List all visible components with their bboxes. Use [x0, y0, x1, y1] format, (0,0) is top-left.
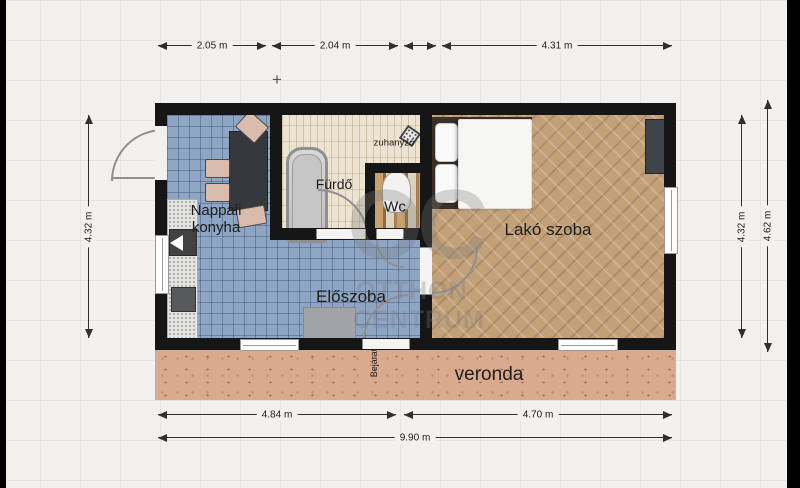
- dim-top-bathroom: 2.04 m: [272, 45, 398, 46]
- dim-top-bathroom-label: 2.04 m: [315, 41, 356, 52]
- entrance-door-mat: [303, 307, 356, 341]
- dining-chair-left-2: [205, 183, 230, 202]
- label-veranda: veronda: [455, 364, 524, 386]
- bed-pillow-1: [435, 123, 458, 162]
- label-hallway: Előszoba: [316, 287, 386, 307]
- dining-chair-left-1: [205, 159, 230, 178]
- dim-bottom-left-label: 4.84 m: [257, 410, 298, 421]
- dim-top-wall-segment: [404, 45, 436, 46]
- exterior-door-leaf: [111, 177, 161, 179]
- exterior-door-opening: [155, 126, 167, 180]
- label-kitchen: Nappali konyha: [191, 202, 242, 237]
- dim-bottom-left: 4.84 m: [158, 414, 396, 415]
- window-right: [664, 187, 678, 254]
- window-bottom-right: [558, 339, 618, 351]
- dim-left-height-label: 4.32 m: [84, 206, 95, 247]
- dim-right-outer-height-label: 4.62 m: [763, 206, 774, 247]
- floorplan-viewer: OC OTTHON CENTRUM Nappali konyha Fürdő z…: [0, 0, 800, 488]
- dim-right-inner-height-label: 4.32 m: [737, 206, 748, 247]
- left-letterbox-bar: [0, 0, 6, 488]
- dim-total-width: 9.90 m: [158, 437, 672, 438]
- label-living-room: Lakó szoba: [505, 220, 592, 240]
- label-shower: zuhanyzó: [374, 138, 415, 149]
- window-left: [155, 235, 169, 294]
- window-bottom-left: [240, 339, 299, 351]
- watermark-name-line2: CENTRUM: [353, 306, 485, 335]
- watermark-initials: OC: [347, 178, 482, 271]
- wall-kitchen-bathroom: [270, 115, 282, 240]
- dim-top-living-label: 4.31 m: [537, 41, 578, 52]
- dim-top-kitchen: 2.05 m: [158, 45, 266, 46]
- label-kitchen-line1: Nappali: [191, 202, 242, 219]
- label-bathroom: Fürdő: [316, 176, 353, 192]
- dining-table: [229, 131, 268, 211]
- dim-top-living: 4.31 m: [442, 45, 672, 46]
- dim-right-inner-height: 4.32 m: [741, 115, 742, 338]
- stove: [171, 287, 196, 312]
- dim-bottom-right-label: 4.70 m: [518, 410, 559, 421]
- label-wc: Wc: [384, 199, 406, 216]
- dim-top-kitchen-label: 2.05 m: [192, 41, 233, 52]
- label-entrance: Bejárat: [369, 349, 379, 378]
- dim-left-height: 4.32 m: [88, 115, 89, 338]
- veranda-floor: [155, 350, 676, 400]
- wall-top: [155, 103, 676, 115]
- dim-right-outer-height: 4.62 m: [767, 100, 768, 352]
- dim-bottom-right: 4.70 m: [404, 414, 672, 415]
- wardrobe: [645, 119, 666, 174]
- label-kitchen-line2: konyha: [191, 219, 242, 236]
- right-letterbox-bar: [787, 0, 800, 488]
- crosshair-marker: +: [272, 70, 282, 90]
- dim-total-width-label: 9.90 m: [395, 433, 436, 444]
